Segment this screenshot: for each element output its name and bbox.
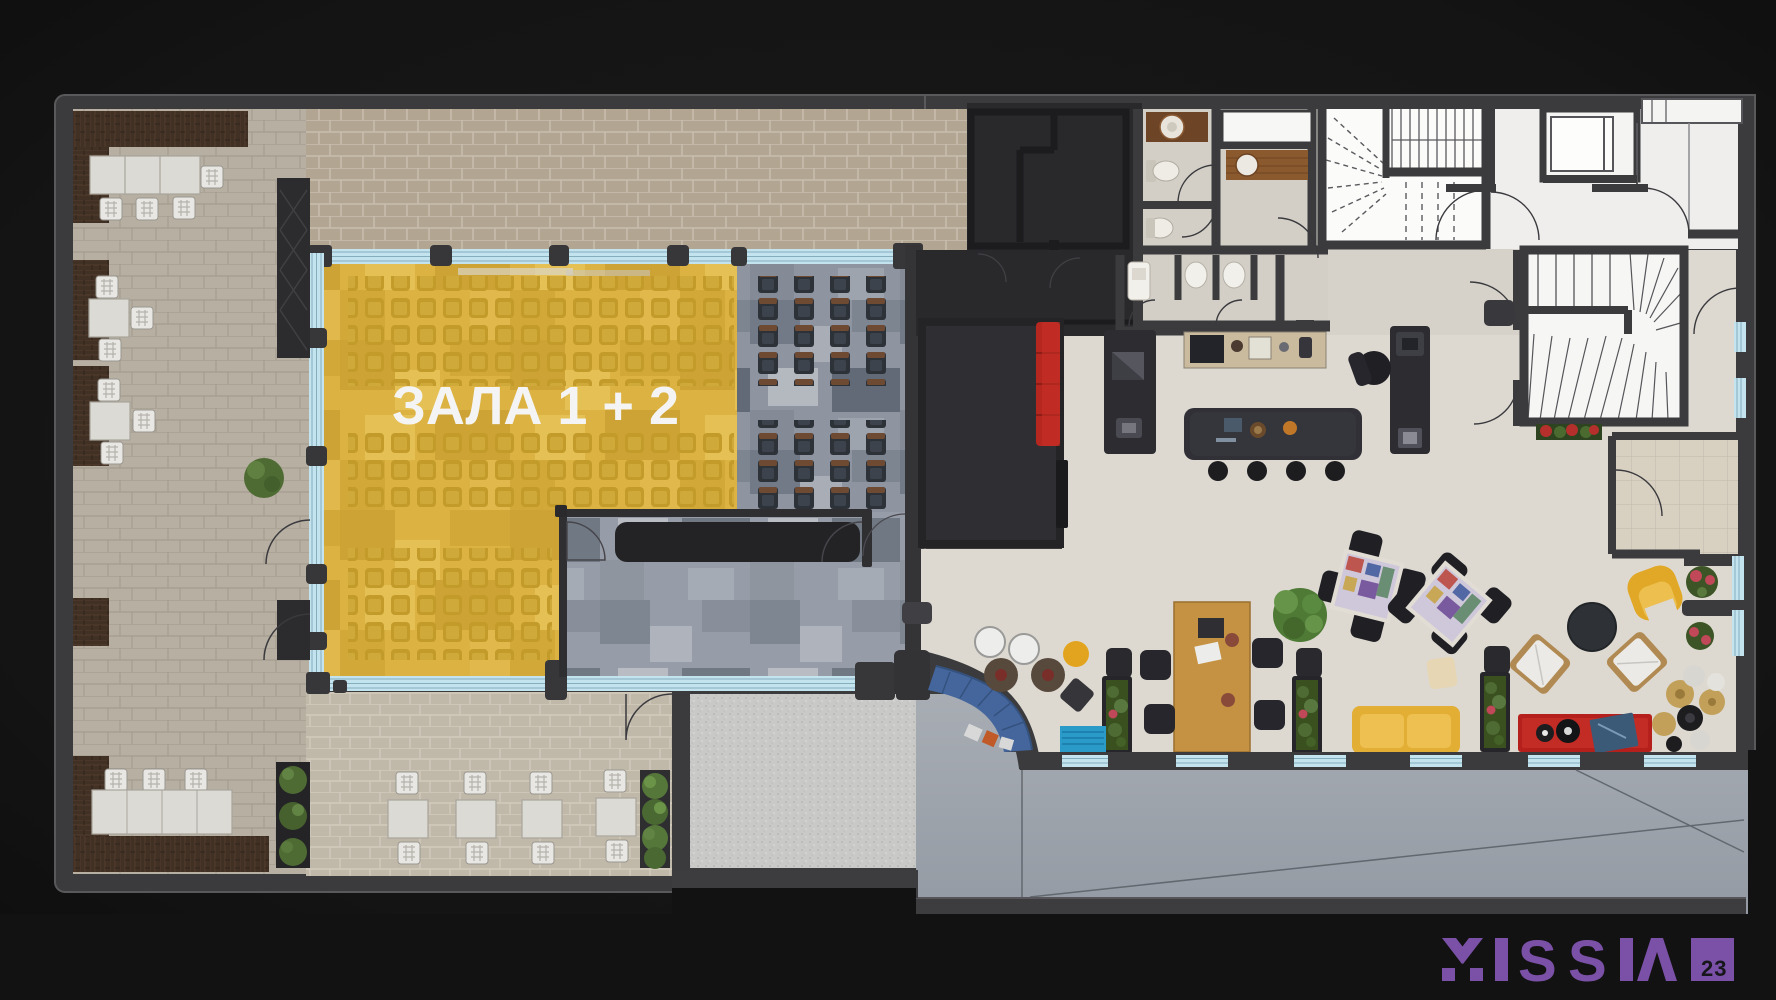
svg-text:ЗАЛА 1 + 2: ЗАЛА 1 + 2 [392, 376, 679, 436]
svg-text:S: S [1518, 929, 1557, 994]
svg-text:S: S [1568, 929, 1607, 994]
svg-text:23: 23 [1701, 956, 1727, 981]
